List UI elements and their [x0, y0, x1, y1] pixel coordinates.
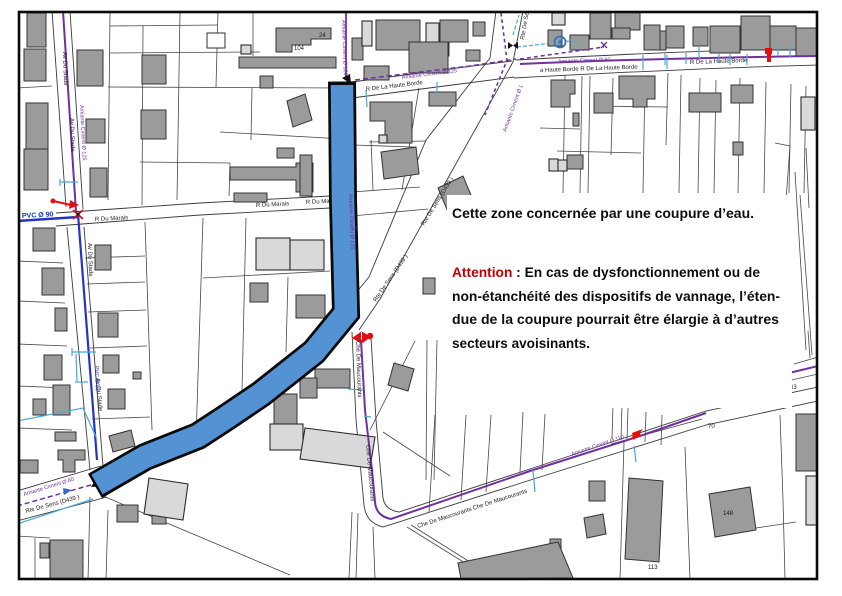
svg-text:PVC Ø 63: PVC Ø 63 [93, 366, 100, 391]
svg-text:113: 113 [648, 565, 658, 571]
svg-text:70: 70 [708, 424, 715, 430]
svg-text:Av Du Stade: Av Du Stade [61, 52, 68, 86]
svg-text:104: 104 [294, 46, 305, 52]
svg-text:148: 148 [723, 511, 734, 517]
svg-text:25: 25 [352, 226, 358, 232]
svg-text:non-étanchéité des dispositifs: non-étanchéité des dispositifs de vannag… [452, 289, 780, 305]
svg-text:Av Du Stade: Av Du Stade [86, 243, 93, 277]
svg-text:Av Du Stade: Av Du Stade [68, 118, 75, 152]
svg-text:R Du Ma: R Du Ma [306, 199, 331, 206]
svg-text:secteurs avoisinants.: secteurs avoisinants. [452, 336, 590, 352]
svg-text:due de la coupure pourrait êtr: due de la coupure pourrait être élargie … [452, 312, 779, 328]
svg-text:24: 24 [319, 33, 326, 39]
svg-text:Cette zone concernée par une c: Cette zone concernée par une coupure d’e… [452, 206, 754, 222]
svg-text:Attention : En cas de dysfonct: Attention : En cas de dysfonctionnement … [452, 265, 760, 281]
